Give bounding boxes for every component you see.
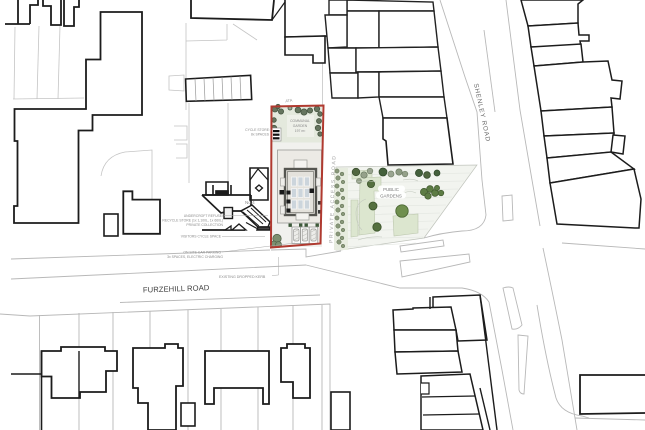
svg-text:PRIVATE COLLECTION: PRIVATE COLLECTION — [186, 223, 223, 227]
svg-text:PUBLIC: PUBLIC — [383, 187, 399, 192]
svg-text:UNDERCROFT REFUSE/: UNDERCROFT REFUSE/ — [184, 214, 223, 218]
svg-text:CYCLE STORE: CYCLE STORE — [245, 128, 270, 132]
svg-text:ON SITE CAR PARKING: ON SITE CAR PARKING — [183, 251, 221, 255]
svg-text:No.4: No.4 — [245, 200, 255, 205]
svg-text:197 m²: 197 m² — [295, 129, 306, 133]
svg-text:GARDEN: GARDEN — [293, 124, 308, 128]
svg-text:GARDENS: GARDENS — [380, 194, 402, 199]
svg-text:3x SPACES, ELECTRIC CHARGING: 3x SPACES, ELECTRIC CHARGING — [167, 255, 223, 259]
svg-text:VISITORS CYCLE SPACE: VISITORS CYCLE SPACE — [181, 235, 222, 239]
svg-text:EXISTING DROPPED KERB: EXISTING DROPPED KERB — [219, 275, 266, 279]
svg-text:8x SPACES: 8x SPACES — [251, 133, 270, 137]
svg-text:COMMUNAL: COMMUNAL — [290, 119, 310, 123]
svg-text:ATA: ATA — [285, 97, 293, 103]
svg-text:RECYCLE STORE (1x 1,100L, 1x 6: RECYCLE STORE (1x 1,100L, 1x 660L) — [162, 219, 223, 223]
